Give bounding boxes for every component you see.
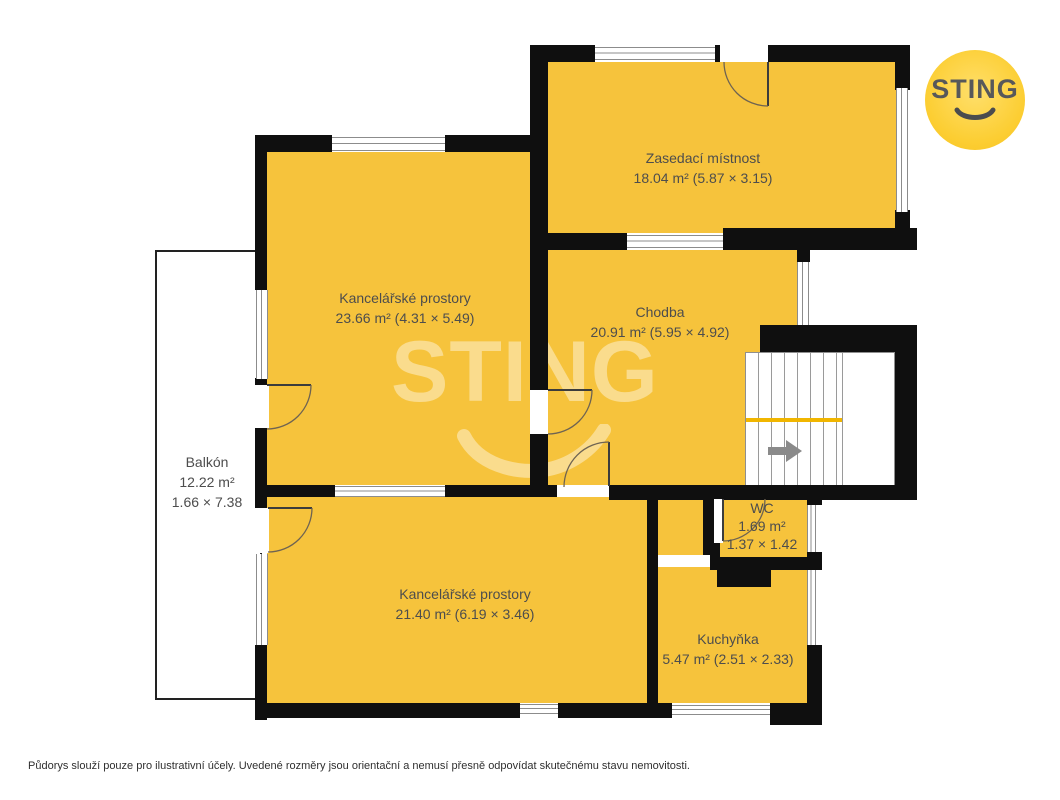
door-opening bbox=[714, 499, 723, 543]
room-area: 23.66 m² (4.31 × 5.49) bbox=[336, 308, 475, 328]
door-opening bbox=[658, 555, 710, 567]
wall-segment bbox=[768, 45, 910, 62]
room-label-office-bottom: Kancelářské prostory 21.40 m² (6.19 × 3.… bbox=[396, 584, 535, 624]
window bbox=[256, 554, 268, 645]
room-name: Zasedací místnost bbox=[634, 148, 773, 168]
wall-segment bbox=[807, 645, 822, 708]
wall-segment bbox=[530, 250, 548, 390]
sting-logo: STING bbox=[925, 50, 1025, 150]
wall-segment bbox=[548, 233, 627, 250]
stair-landing-edge bbox=[842, 353, 843, 486]
window bbox=[332, 137, 445, 151]
wall-segment bbox=[895, 352, 917, 490]
stairs-direction-arrow-icon bbox=[768, 439, 804, 463]
room-label-meeting: Zasedací místnost 18.04 m² (5.87 × 3.15) bbox=[634, 148, 773, 188]
wall-segment bbox=[255, 703, 520, 718]
room-label-balcony: Balkón 12.22 m² 1.66 × 7.38 bbox=[172, 452, 242, 512]
wall-segment bbox=[255, 135, 267, 290]
wall-segment bbox=[710, 557, 822, 570]
room-area: 12.22 m² bbox=[172, 472, 242, 492]
wall-segment bbox=[255, 378, 267, 385]
room-area: 5.47 m² (2.51 × 2.33) bbox=[662, 649, 793, 669]
room-area: 18.04 m² (5.87 × 3.15) bbox=[634, 168, 773, 188]
room-name: Balkón bbox=[172, 452, 242, 472]
window bbox=[896, 88, 908, 212]
room-dims: 1.37 × 1.42 bbox=[727, 535, 797, 553]
disclaimer-text: Půdorys slouží pouze pro ilustrativní úč… bbox=[28, 760, 690, 772]
room-name: WC bbox=[727, 499, 797, 517]
room-label-wc: WC 1.69 m² 1.37 × 1.42 bbox=[727, 499, 797, 553]
window bbox=[807, 505, 816, 552]
wall-segment bbox=[760, 325, 917, 352]
wall-segment bbox=[797, 250, 810, 262]
room-name: Kancelářské prostory bbox=[336, 288, 475, 308]
room-dims: 1.66 × 7.38 bbox=[172, 492, 242, 512]
room-name: Chodba bbox=[591, 302, 730, 322]
wall-segment bbox=[717, 570, 771, 587]
wall-segment bbox=[715, 45, 720, 62]
window bbox=[520, 704, 558, 714]
window bbox=[797, 262, 809, 325]
room-area: 1.69 m² bbox=[727, 517, 797, 535]
wall-segment bbox=[723, 228, 917, 250]
window bbox=[627, 235, 723, 248]
door-opening bbox=[255, 385, 269, 428]
room-area: 20.91 m² (5.95 × 4.92) bbox=[591, 322, 730, 342]
wall-segment bbox=[558, 703, 672, 718]
room-name: Kancelářské prostory bbox=[396, 584, 535, 604]
room-area: 21.40 m² (6.19 × 3.46) bbox=[396, 604, 535, 624]
wall-segment bbox=[255, 485, 335, 497]
window bbox=[595, 47, 715, 60]
room-name: Kuchyňka bbox=[662, 629, 793, 649]
wall-segment bbox=[895, 62, 910, 90]
floorplan-canvas: STING bbox=[0, 0, 1060, 800]
window bbox=[335, 486, 445, 497]
room-label-office-top: Kancelářské prostory 23.66 m² (4.31 × 5.… bbox=[336, 288, 475, 328]
window bbox=[256, 290, 268, 379]
window bbox=[672, 705, 770, 715]
window bbox=[807, 570, 816, 645]
stair-flight-upper bbox=[746, 353, 842, 418]
wall-segment bbox=[807, 485, 822, 505]
staircase bbox=[745, 352, 895, 487]
wall-segment bbox=[445, 135, 530, 152]
room-label-hall: Chodba 20.91 m² (5.95 × 4.92) bbox=[591, 302, 730, 342]
room-label-kitchen: Kuchyňka 5.47 m² (2.51 × 2.33) bbox=[662, 629, 793, 669]
logo-smile-icon bbox=[951, 106, 999, 124]
sting-logo-text: STING bbox=[931, 76, 1019, 103]
wall-segment bbox=[530, 45, 548, 250]
wall-segment bbox=[647, 497, 658, 705]
wall-segment bbox=[530, 434, 548, 497]
door-opening bbox=[255, 508, 269, 553]
